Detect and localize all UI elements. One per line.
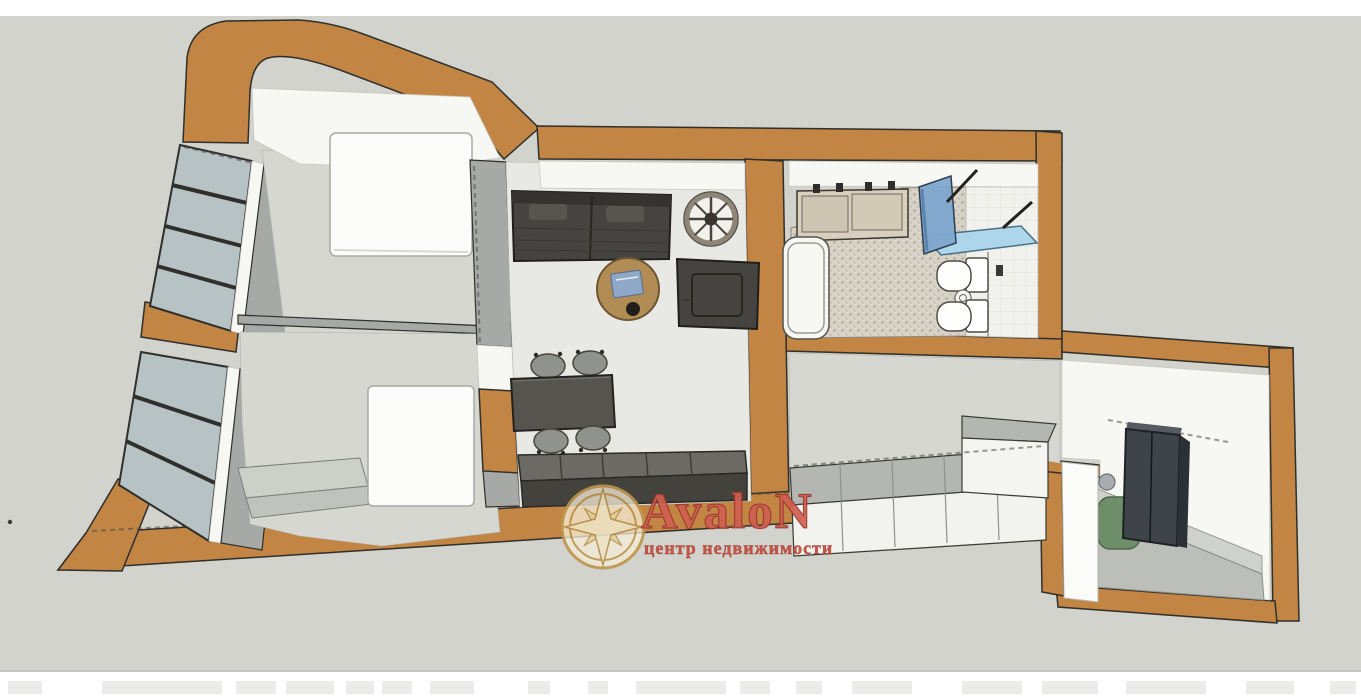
armchair bbox=[677, 259, 759, 329]
chair-leg bbox=[603, 448, 607, 452]
sofa-cushion bbox=[529, 204, 567, 220]
faucet bbox=[865, 182, 872, 191]
bidet bbox=[937, 302, 971, 331]
living-room bbox=[506, 161, 759, 507]
bed-2 bbox=[368, 386, 474, 506]
bathroom-top-wall-face bbox=[789, 161, 1038, 187]
chair-leg bbox=[600, 350, 604, 354]
artifact-blob bbox=[1126, 681, 1206, 694]
artifact-blob bbox=[1330, 681, 1356, 694]
toilet bbox=[937, 261, 971, 291]
dining-chair bbox=[576, 426, 610, 450]
artifact-blob bbox=[236, 681, 276, 694]
dining-table bbox=[511, 375, 615, 431]
wall-top bbox=[537, 126, 1062, 161]
side-room bbox=[1062, 360, 1270, 602]
wardrobe-return-front bbox=[962, 438, 1048, 498]
wall-living-hall-divider bbox=[745, 159, 789, 504]
bedroom-2 bbox=[238, 332, 500, 546]
living-room-top-wall-face bbox=[539, 161, 745, 190]
bathtub bbox=[783, 237, 829, 339]
clock-hub bbox=[705, 213, 718, 226]
bed-1 bbox=[330, 133, 472, 256]
sofa-cushion bbox=[606, 206, 644, 222]
faucet bbox=[888, 181, 895, 190]
wall-button bbox=[996, 265, 1003, 276]
artifact-blob bbox=[1246, 681, 1294, 694]
chair-leg bbox=[576, 350, 580, 354]
artifact-blob bbox=[740, 681, 770, 694]
dining-chair bbox=[573, 351, 607, 375]
dining-chair bbox=[531, 354, 565, 378]
wall-wing-right bbox=[1269, 348, 1299, 621]
artifact-blob bbox=[636, 681, 726, 694]
chair-leg bbox=[534, 353, 538, 357]
round-fixture bbox=[1099, 474, 1115, 490]
speck-artifact bbox=[8, 520, 12, 524]
artifact-blob bbox=[528, 681, 550, 694]
page-bottom-strip bbox=[0, 672, 1361, 700]
artifact-blob bbox=[588, 681, 608, 694]
artifact-blob bbox=[796, 681, 822, 694]
wall-bathroom-right bbox=[1036, 131, 1062, 352]
sink bbox=[852, 194, 902, 230]
floor-plan-render: AvaloN центр недвижимости bbox=[0, 0, 1361, 700]
hallway bbox=[789, 353, 1060, 556]
artifact-blob bbox=[1042, 681, 1098, 694]
thumbnail-artifact-row bbox=[0, 681, 1361, 695]
artifact-blob bbox=[102, 681, 222, 694]
divider-wall-lower bbox=[483, 471, 520, 507]
divider-door-opening bbox=[477, 345, 514, 391]
faucet bbox=[836, 183, 843, 192]
artifact-blob bbox=[286, 681, 334, 694]
coffee-table-item bbox=[626, 302, 640, 316]
floor-plan-canvas bbox=[0, 0, 1361, 700]
chair-leg bbox=[558, 352, 562, 356]
artifact-blob bbox=[852, 681, 912, 694]
dining-chair bbox=[534, 429, 568, 453]
chair-leg bbox=[537, 450, 541, 454]
artifact-blob bbox=[962, 681, 1022, 694]
artifact-blob bbox=[382, 681, 412, 694]
artifact-blob bbox=[430, 681, 474, 694]
inner-wall-white bbox=[1062, 462, 1098, 602]
sink bbox=[802, 196, 848, 232]
artifact-blob bbox=[346, 681, 374, 694]
coffee-table-magazine bbox=[610, 270, 643, 298]
watermark-logo bbox=[562, 486, 644, 568]
divider-wall-upper bbox=[470, 160, 512, 347]
artifact-blob bbox=[8, 681, 42, 694]
faucet bbox=[813, 184, 820, 193]
chair-leg bbox=[579, 448, 583, 452]
